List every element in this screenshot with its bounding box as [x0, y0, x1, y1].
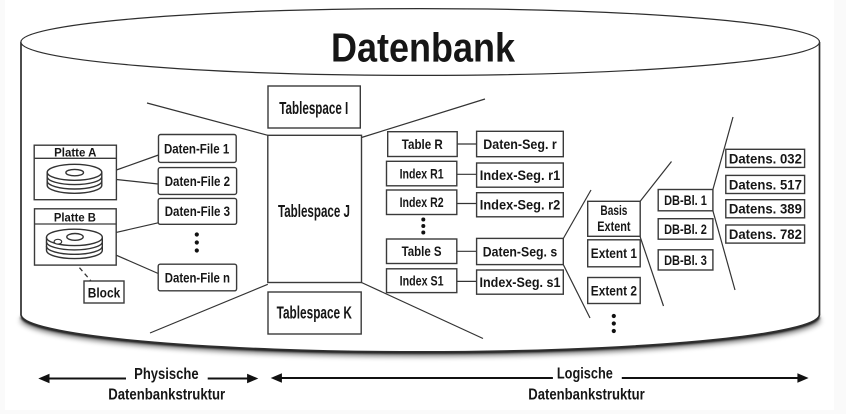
svg-text:Table S: Table S — [402, 243, 442, 259]
svg-text:Datenbankstruktur: Datenbankstruktur — [108, 387, 225, 404]
svg-text:Platte B: Platte B — [54, 211, 96, 225]
svg-text:Daten-File 3: Daten-File 3 — [165, 203, 230, 219]
svg-text:Datens. 782: Datens. 782 — [729, 226, 802, 242]
svg-text:DB-Bl. 1: DB-Bl. 1 — [664, 192, 707, 208]
svg-text:Index-Seg. r2: Index-Seg. r2 — [480, 197, 561, 213]
svg-text:DB-Bl. 2: DB-Bl. 2 — [664, 221, 707, 237]
svg-text:Datenbank: Datenbank — [331, 25, 515, 71]
svg-text:Basis: Basis — [600, 202, 627, 218]
svg-text:DB-Bl. 3: DB-Bl. 3 — [664, 252, 707, 268]
svg-text:Logische: Logische — [557, 365, 613, 382]
svg-text:Daten-File 2: Daten-File 2 — [165, 173, 230, 189]
svg-text:Extent: Extent — [597, 218, 630, 234]
svg-text:Daten-File n: Daten-File n — [165, 269, 230, 285]
svg-text:Index R1: Index R1 — [400, 166, 444, 182]
svg-text:Daten-Seg. r: Daten-Seg. r — [483, 136, 557, 152]
svg-text:Extent 1: Extent 1 — [591, 245, 637, 261]
svg-text:Index-Seg. s1: Index-Seg. s1 — [480, 274, 561, 290]
svg-text:Platte A: Platte A — [54, 145, 97, 159]
svg-text:Physische: Physische — [134, 366, 199, 383]
svg-text:Block: Block — [88, 285, 121, 300]
svg-text:Tablespace J: Tablespace J — [278, 201, 350, 221]
svg-text:Datens. 517: Datens. 517 — [729, 176, 802, 192]
svg-text:Table R: Table R — [402, 136, 443, 152]
svg-text:Datens. 389: Datens. 389 — [729, 201, 802, 217]
svg-text:Index R2: Index R2 — [400, 194, 444, 210]
svg-text:Daten-Seg. s: Daten-Seg. s — [483, 243, 558, 259]
svg-text:Tablespace K: Tablespace K — [277, 302, 353, 322]
svg-text:Datenbankstruktur: Datenbankstruktur — [528, 387, 645, 404]
svg-text:Daten-File 1: Daten-File 1 — [164, 140, 229, 156]
svg-text:Index-Seg. r1: Index-Seg. r1 — [480, 167, 561, 183]
svg-text:Tablespace I: Tablespace I — [279, 98, 348, 118]
svg-text:Datens. 032: Datens. 032 — [729, 150, 802, 166]
svg-text:Extent 2: Extent 2 — [591, 282, 637, 298]
svg-text:Index S1: Index S1 — [400, 273, 444, 289]
